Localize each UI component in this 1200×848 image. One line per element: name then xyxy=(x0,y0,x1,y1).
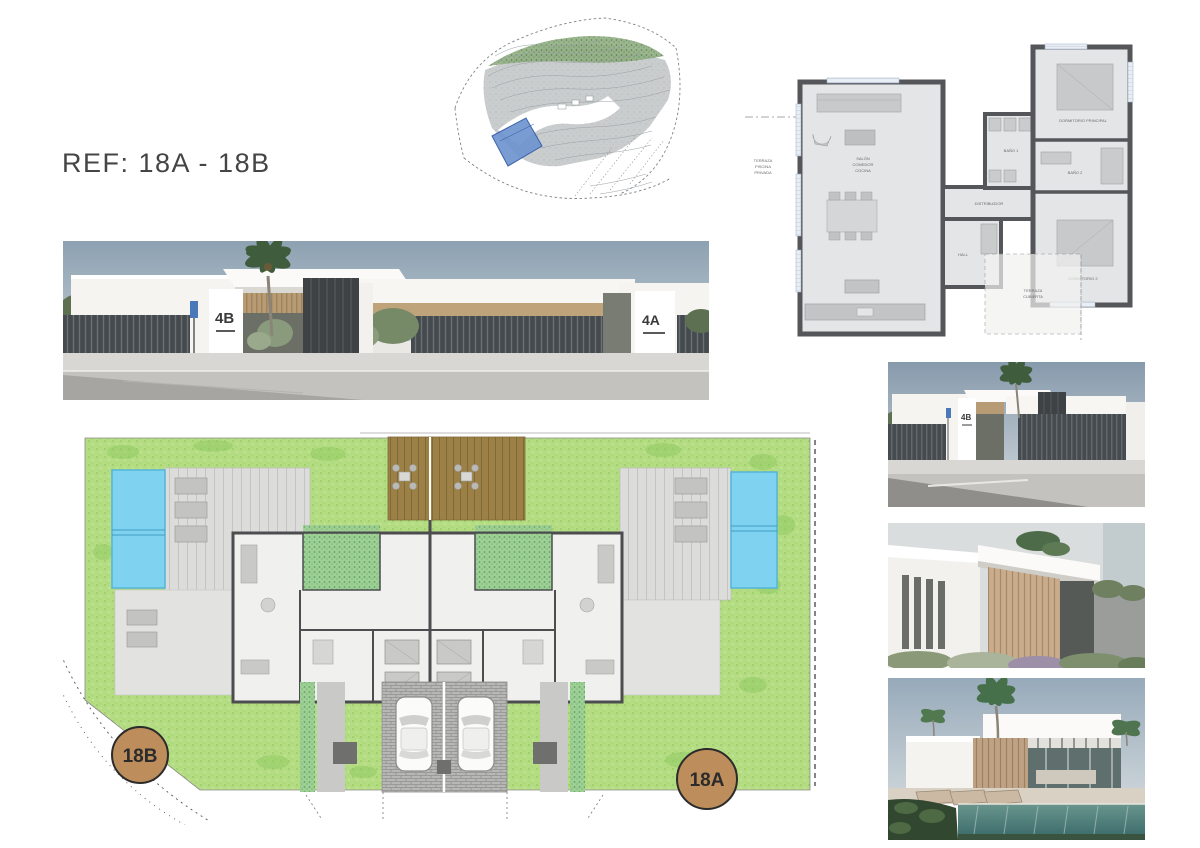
pool-left xyxy=(112,470,165,588)
entry-recess xyxy=(1060,581,1094,663)
car-left xyxy=(396,697,432,771)
site-plan: 18B 18A xyxy=(63,430,820,825)
street-elevation-render: 4B xyxy=(63,241,709,400)
wood-deck xyxy=(388,437,525,520)
svg-text:18B: 18B xyxy=(123,746,158,767)
svg-text:DORMITORIO PRINCIPAL: DORMITORIO PRINCIPAL xyxy=(1059,118,1108,123)
floor-plan: TERRAZA PISCINA PRIVADA SA xyxy=(745,42,1175,342)
svg-text:TERRAZA: TERRAZA xyxy=(1024,288,1043,293)
svg-text:BAÑO 2: BAÑO 2 xyxy=(1068,170,1083,175)
render-entrance-view xyxy=(888,523,1145,668)
villa-4a: 4A xyxy=(603,283,709,354)
svg-text:BAÑO 1: BAÑO 1 xyxy=(1004,148,1019,153)
bathroom-1: BAÑO 1 xyxy=(985,114,1037,188)
house-number-4b: 4B xyxy=(215,310,234,327)
svg-text:SALÓN: SALÓN xyxy=(856,156,870,161)
wood-slat-box xyxy=(973,738,1028,793)
left-fence xyxy=(63,315,190,354)
page-title: REF: 18A - 18B xyxy=(62,148,271,179)
svg-text:HALL: HALL xyxy=(958,252,969,257)
dark-volume xyxy=(303,278,373,354)
render-pool-view xyxy=(888,678,1145,840)
svg-text:COMEDOR: COMEDOR xyxy=(853,162,874,167)
plot-badge-18b: 18B xyxy=(112,727,168,783)
covered-terrace: TERRAZA CUBIERTA xyxy=(985,254,1081,340)
pool-right xyxy=(731,472,777,588)
street-ground xyxy=(63,353,709,400)
render-street-view: 4B xyxy=(888,362,1145,507)
pool xyxy=(958,804,1145,834)
car-right xyxy=(458,697,494,771)
wood-slat-wall xyxy=(988,567,1060,663)
house-18a-plan xyxy=(430,533,622,702)
topographic-site-map xyxy=(440,8,690,205)
svg-text:COCINA: COCINA xyxy=(855,168,871,173)
svg-text:PRIVADA: PRIVADA xyxy=(754,170,772,175)
svg-text:CUBIERTA: CUBIERTA xyxy=(1023,294,1043,299)
corridor: DISTRIBUIDOR xyxy=(943,187,1035,219)
right-terrace xyxy=(620,468,731,695)
house-number-4a: 4A xyxy=(642,312,660,328)
svg-text:18A: 18A xyxy=(690,770,725,791)
svg-text:PISCINA: PISCINA xyxy=(755,164,771,169)
side-annotation: TERRAZA PISCINA PRIVADA xyxy=(754,158,773,175)
house-number-4b: 4B xyxy=(961,413,971,422)
plot-badge-18a: 18A xyxy=(677,749,737,809)
brochure-page: REF: 18A - 18B xyxy=(0,0,1200,848)
svg-text:DISTRIBUIDOR: DISTRIBUIDOR xyxy=(975,201,1004,206)
svg-text:TERRAZA: TERRAZA xyxy=(754,158,773,163)
house-18b-plan xyxy=(233,533,430,702)
road-annotations xyxy=(306,792,603,822)
living-wing: SALÓN COMEDOR COCINA xyxy=(796,78,943,334)
